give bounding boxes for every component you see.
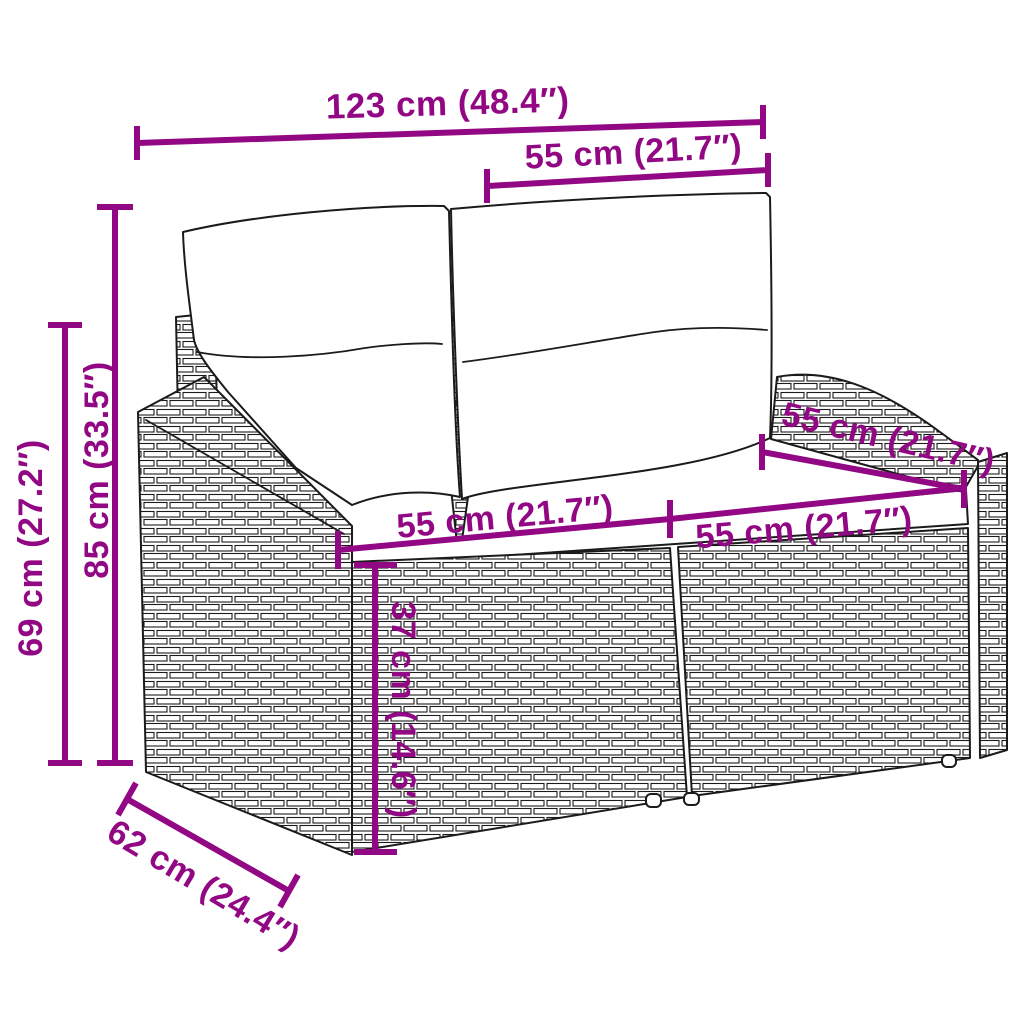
- dim-arm-height: 69 cm (27.2″): [12, 325, 82, 763]
- right-end-panel: [978, 453, 1007, 758]
- sofa-foot-middle-left: [646, 794, 661, 807]
- dim-overall-height: 85 cm (33.5″): [78, 207, 133, 763]
- dim-overall-height-label: 85 cm (33.5″): [78, 361, 116, 578]
- back-cushion-right: [451, 193, 772, 499]
- dim-backrest-width: 55 cm (21.7″): [487, 127, 768, 203]
- dim-arm-height-label: 69 cm (27.2″): [12, 439, 50, 656]
- diagram-svg: 123 cm (48.4″) 55 cm (21.7″) 85 cm (33.5…: [0, 0, 1024, 1024]
- sofa-foot-right: [942, 755, 956, 767]
- dimension-diagram: 123 cm (48.4″) 55 cm (21.7″) 85 cm (33.5…: [0, 0, 1024, 1024]
- dim-overall-width-label: 123 cm (48.4″): [325, 80, 570, 126]
- front-panel-right-seat: [678, 528, 970, 796]
- sofa-foot-middle-right: [684, 793, 699, 805]
- dim-backrest-width-label: 55 cm (21.7″): [524, 127, 743, 176]
- dim-seat-height-label: 37 cm (14.6″): [384, 601, 422, 818]
